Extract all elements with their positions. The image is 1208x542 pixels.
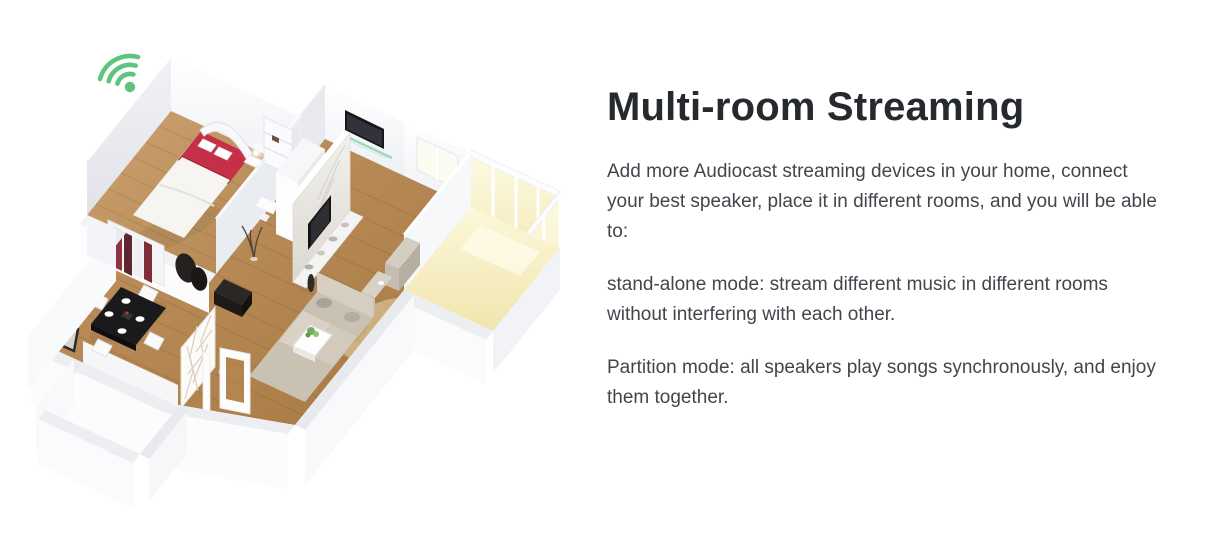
bedside-lamp [253,150,259,156]
hearth-stone [329,237,338,242]
plate [136,316,145,322]
plant [313,331,319,337]
hearth-stone [341,223,349,228]
feature-paragraph-standalone: stand-alone mode: stream different music… [607,270,1163,330]
dish [378,281,384,285]
decor-base [250,257,258,261]
hanging-clothes [124,232,132,276]
plate [122,298,131,304]
dark-vase [308,274,315,292]
plant [306,333,311,338]
feature-section: Multi-room Streaming Add more Audiocast … [0,0,1208,542]
centerpiece-fruit [126,312,129,315]
floor-plan-illustration [0,0,600,542]
sofa-pillow [316,298,332,308]
plate [118,328,127,334]
wifi-arc-small [116,71,134,84]
hanging-clothes [134,237,142,279]
hearth-stone [305,265,314,270]
plate [105,311,114,317]
feature-paragraph-partition: Partition mode: all speakers play songs … [607,353,1163,413]
sofa-pillow [344,312,360,322]
hearth-stone [317,251,325,256]
hanging-clothes [144,241,152,283]
wifi-dot [123,80,137,94]
door-frame-post [203,352,210,416]
feature-paragraph-intro: Add more Audiocast streaming devices in … [607,157,1163,247]
section-heading: Multi-room Streaming [607,84,1163,131]
feature-copy: Multi-room Streaming Add more Audiocast … [607,84,1163,413]
